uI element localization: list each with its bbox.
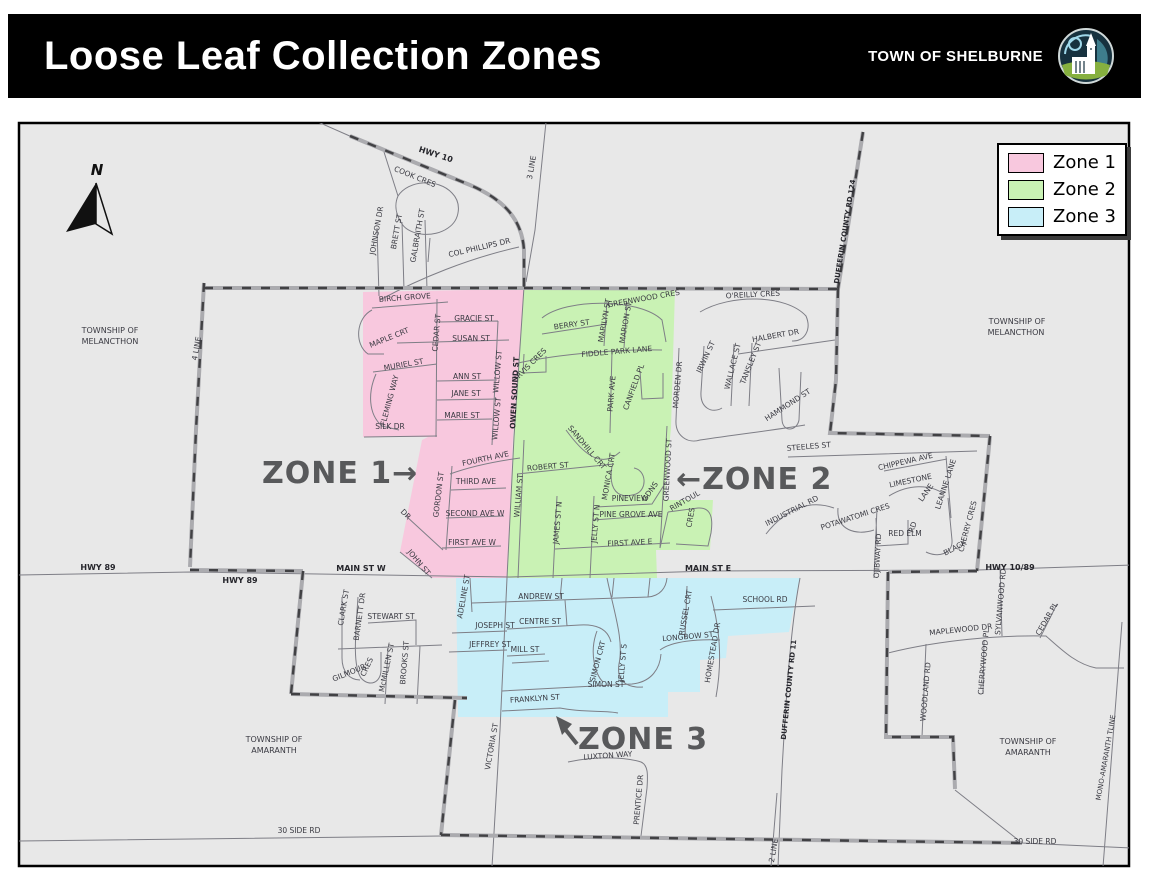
zone-big-label: ZONE 3 [578,722,708,757]
street-label: 30 SIDE RD [1014,837,1057,846]
street-label: HWY 89 [222,576,258,585]
zone-big-label: ←ZONE 2 [676,462,832,497]
street-label: MELANCTHON [988,328,1045,337]
street-label: MARIE ST [444,411,480,420]
street-label: AMARANTH [1005,748,1050,757]
legend-swatch [1008,180,1044,200]
street-label: CENTRE ST [519,617,561,626]
street-label: SIMON ST [588,680,625,689]
street-label: SILK DR [375,422,404,431]
legend-label: Zone 1 [1053,152,1116,173]
street-label: THIRD AVE [455,477,497,486]
street-label: JANE ST [450,389,481,398]
page: Loose Leaf Collection Zones TOWN OF SHEL… [0,0,1149,882]
legend-item: Zone 1 [1008,152,1116,173]
legend-label: Zone 3 [1053,206,1116,227]
legend-swatch [1008,153,1044,173]
street-label: HWY 10/89 [985,563,1035,572]
street-label: JEFFREY ST [468,640,511,649]
street-label: SECOND AVE W [446,509,505,518]
legend-item: Zone 2 [1008,179,1116,200]
street-label: SUSAN ST [452,334,490,343]
street-label: TOWNSHIP OF [245,735,303,744]
legend-label: Zone 2 [1053,179,1116,200]
street-label: MAIN ST E [685,564,731,573]
street-label: ANDREW ST [518,592,564,601]
street-label: 30 SIDE RD [278,826,321,835]
north-label: N [91,161,104,179]
street-label: MILL ST [511,645,540,654]
street-label: TOWNSHIP OF [999,737,1057,746]
street-label: TOWNSHIP OF [81,326,139,335]
zone-big-label: ZONE 1→ [262,456,418,491]
street-label: HWY 89 [80,563,116,572]
legend-item: Zone 3 [1008,206,1116,227]
street-label: MELANCTHON [82,337,139,346]
street-label: JOSEPH ST [474,621,515,630]
street-label: STEWART ST [367,612,415,621]
street-label: GRACIE ST [454,314,494,323]
street-label: RED ELM [888,529,922,538]
legend: Zone 1Zone 2Zone 3 [997,143,1127,236]
street-label: FIRST AVE W [448,538,496,547]
street-label: PINE GROVE AVE [599,510,662,519]
street-label: ANN ST [453,372,481,381]
street-label: MAIN ST W [336,564,386,573]
street-label: TOWNSHIP OF [988,317,1046,326]
street-label: SCHOOL RD [743,595,788,604]
street-label: AMARANTH [251,746,296,755]
zone-map: N HWY 10COOK CRES3 LINEJOHNSON DRBRETT S… [0,0,1149,882]
legend-swatch [1008,207,1044,227]
